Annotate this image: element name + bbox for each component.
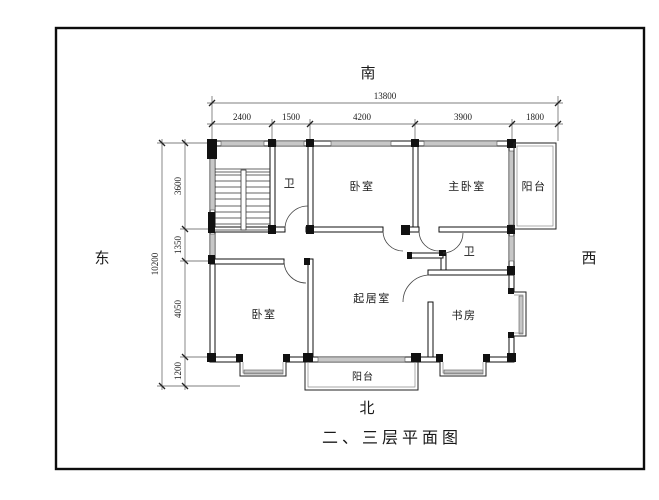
room-label-bedroom-bottom: 卧室 bbox=[252, 307, 277, 321]
floor-plan-page: 南 北 东 西 13800 2400 1500 4200 3900 1800 bbox=[0, 0, 659, 500]
compass-west: 西 bbox=[581, 251, 596, 267]
dimension-top: 13800 2400 1500 4200 3900 1800 bbox=[207, 91, 563, 141]
floor-plan-drawing: 南 北 东 西 13800 2400 1500 4200 3900 1800 bbox=[0, 0, 659, 500]
door-master-bedroom bbox=[419, 231, 439, 251]
compass-north: 北 bbox=[359, 400, 374, 417]
room-label-balcony-east: 阳台 bbox=[522, 179, 547, 193]
door-bath-top bbox=[285, 206, 308, 229]
door-study bbox=[403, 275, 430, 302]
compass-labels: 南 北 东 西 bbox=[94, 65, 596, 417]
dim-left-seg-1: 3600 bbox=[173, 177, 183, 196]
compass-south: 南 bbox=[360, 65, 375, 82]
room-label-study: 书房 bbox=[452, 309, 477, 322]
dim-top-seg-1: 2400 bbox=[233, 112, 252, 122]
door-bedroom-top bbox=[383, 231, 403, 251]
dim-left-seg-4: 1200 bbox=[173, 362, 183, 381]
room-label-bedroom-top: 卧室 bbox=[350, 179, 375, 193]
dim-top-total: 13800 bbox=[374, 91, 397, 101]
room-label-master-bedroom: 主卧室 bbox=[448, 179, 486, 193]
dim-top-seg-3: 4200 bbox=[353, 112, 372, 122]
staircase bbox=[215, 169, 270, 230]
room-label-balcony-south: 阳台 bbox=[352, 370, 374, 383]
drawing-title: 二、三层平面图 bbox=[322, 430, 462, 447]
dim-left-seg-3: 4050 bbox=[173, 300, 183, 319]
room-label-living-room: 起居室 bbox=[353, 291, 391, 305]
dim-top-seg-2: 1500 bbox=[282, 112, 301, 122]
dim-left-seg-2: 1350 bbox=[173, 236, 183, 255]
room-label-bath-mid: 卫 bbox=[464, 246, 477, 258]
dim-left-total: 10200 bbox=[150, 252, 160, 275]
dim-top-seg-5: 1800 bbox=[526, 112, 545, 122]
room-label-bath-top: 卫 bbox=[284, 178, 297, 190]
page-border-frame bbox=[56, 28, 644, 469]
compass-east: 东 bbox=[94, 250, 109, 267]
door-bedroom-bottom bbox=[284, 261, 306, 283]
dim-top-seg-4: 3900 bbox=[454, 112, 473, 122]
